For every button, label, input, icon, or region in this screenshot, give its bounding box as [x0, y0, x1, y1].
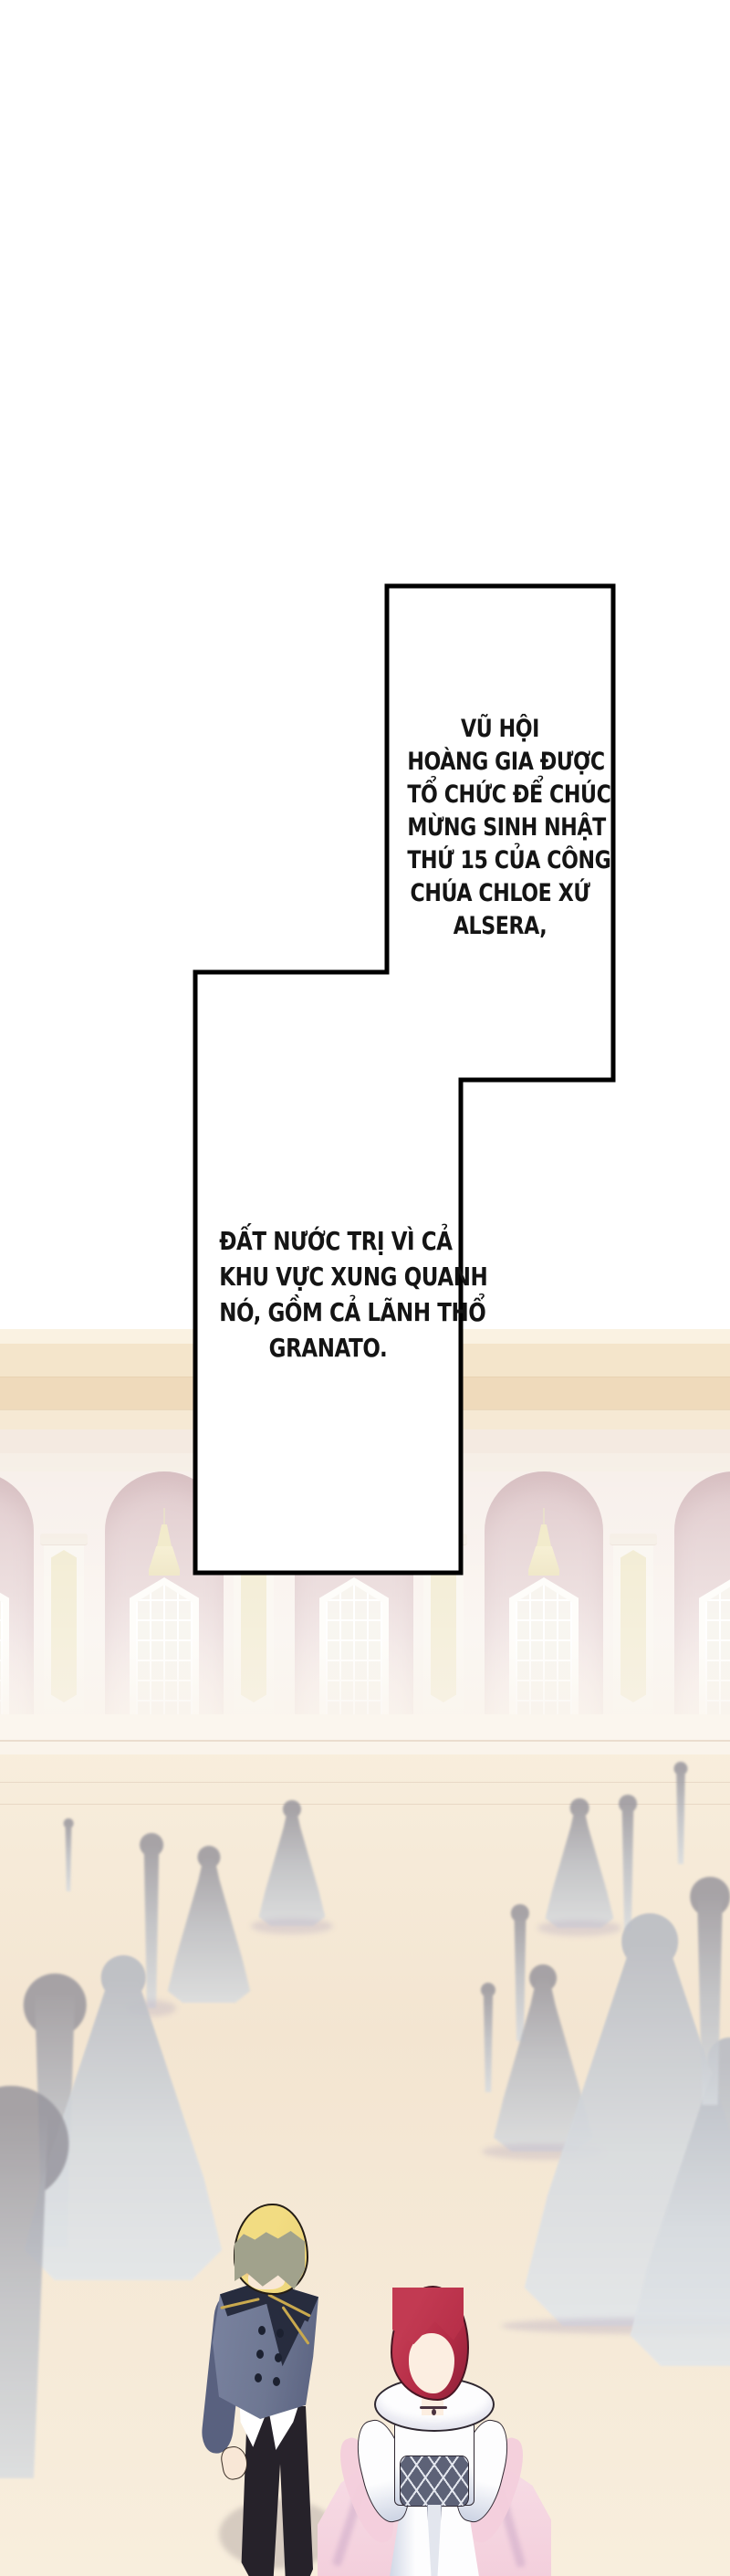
narration-line: MỪNG SINH NHẬT [407, 812, 592, 844]
narration-line: ĐẤT NƯỚC TRỊ VÌ CẢ [219, 1223, 437, 1259]
narration-line: NÓ, GỒM CẢ LÃNH THỔ [219, 1294, 437, 1330]
narration-line: ALSERA, [407, 910, 592, 943]
narration-line: HOÀNG GIA ĐƯỢC [407, 746, 592, 779]
narration-line: GRANATO. [219, 1330, 437, 1366]
narration-line: VŨ HỘI [407, 713, 592, 746]
narration-line: THỨ 15 CỦA CÔNG [407, 844, 592, 877]
narration-box-1: VŨ HỘI HOÀNG GIA ĐƯỢC TỔ CHỨC ĐỂ CHÚC MỪ… [387, 713, 613, 943]
comic-page: VŨ HỘI HOÀNG GIA ĐƯỢC TỔ CHỨC ĐỂ CHÚC MỪ… [0, 0, 730, 2576]
narration-line: KHU VỰC XUNG QUANH [219, 1259, 437, 1294]
narration-box-2: ĐẤT NƯỚC TRỊ VÌ CẢ KHU VỰC XUNG QUANH NÓ… [195, 1223, 461, 1366]
narration-line: CHÚA CHLOE XỨ [407, 877, 592, 910]
narration-line: TỔ CHỨC ĐỂ CHÚC [407, 779, 592, 812]
